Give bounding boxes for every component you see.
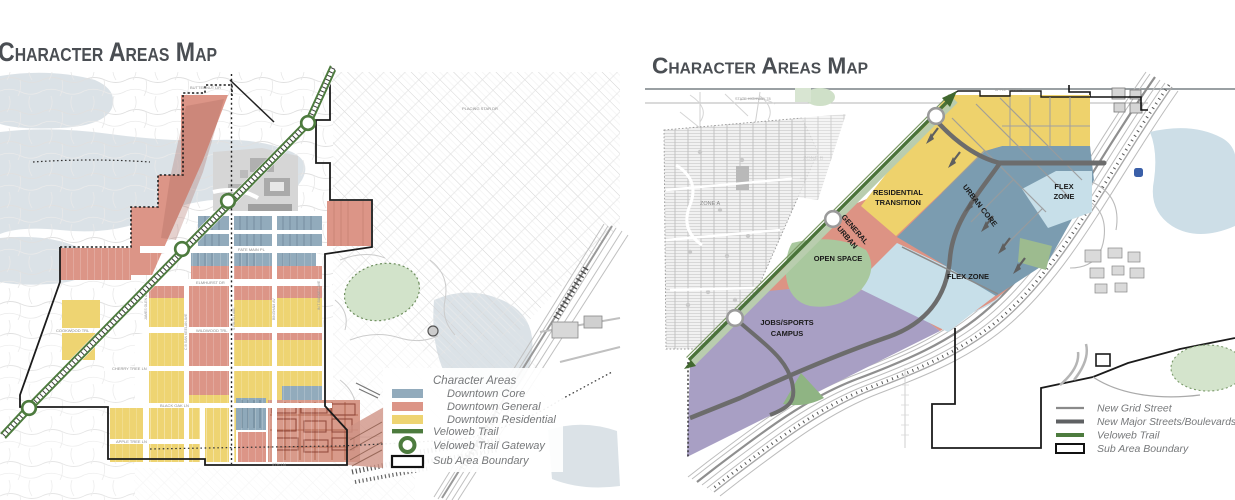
svg-text:Sub Area Boundary: Sub Area Boundary <box>433 455 530 467</box>
svg-text:Character Areas Map: Character Areas Map <box>652 53 868 79</box>
svg-text:FLEX: FLEX <box>1054 182 1073 191</box>
svg-text:Veloweb Trail Gateway: Veloweb Trail Gateway <box>433 440 546 452</box>
svg-text:Character Areas Map: Character Areas Map <box>0 37 217 67</box>
svg-text:FLEX ZONE: FLEX ZONE <box>947 272 989 281</box>
svg-text:Downtown Residential: Downtown Residential <box>447 414 556 426</box>
svg-text:APPLE TREE LN: APPLE TREE LN <box>116 439 147 444</box>
svg-text:BINGHAM AV: BINGHAM AV <box>272 298 276 320</box>
svg-text:New Grid Street: New Grid Street <box>1097 403 1173 415</box>
svg-text:S FM 551 AVE: S FM 551 AVE <box>232 307 236 330</box>
svg-text:RESIDENTIAL: RESIDENTIAL <box>873 188 923 197</box>
svg-text:COOKWOOD TRL: COOKWOOD TRL <box>56 328 90 333</box>
svg-text:ZONE: ZONE <box>1054 192 1075 201</box>
svg-text:Character Areas: Character Areas <box>433 375 517 387</box>
svg-text:Veloweb Trail: Veloweb Trail <box>1097 430 1160 442</box>
svg-text:8TH LN: 8TH LN <box>272 462 286 467</box>
svg-text:IN T BARNES AVE: IN T BARNES AVE <box>317 280 321 310</box>
svg-text:New Major Streets/Boulevards: New Major Streets/Boulevards <box>1097 417 1235 428</box>
svg-text:C B SAN KEELAN AVE: C B SAN KEELAN AVE <box>184 313 188 350</box>
svg-text:OPEN SPACE: OPEN SPACE <box>814 254 863 263</box>
svg-text:FATE MAIN PL: FATE MAIN PL <box>238 247 266 252</box>
svg-text:CAMPUS: CAMPUS <box>771 329 804 338</box>
svg-text:WILDWOOD TRL: WILDWOOD TRL <box>196 328 228 333</box>
svg-text:BLACK OAK LN: BLACK OAK LN <box>160 403 189 408</box>
svg-text:JOBS/SPORTS: JOBS/SPORTS <box>760 318 813 327</box>
svg-text:BUTTERNUT DR: BUTTERNUT DR <box>190 85 221 90</box>
svg-text:ELMHURST DR: ELMHURST DR <box>196 280 225 285</box>
svg-text:PLACING STAR DR: PLACING STAR DR <box>462 106 498 111</box>
svg-text:ZONE A: ZONE A <box>700 201 721 207</box>
svg-text:CHERRY TREE LN: CHERRY TREE LN <box>112 366 147 371</box>
svg-text:Sub Area Boundary: Sub Area Boundary <box>1097 443 1189 455</box>
svg-text:STATE HIGHWAY 78: STATE HIGHWAY 78 <box>735 97 771 101</box>
svg-text:Downtown Core: Downtown Core <box>447 388 525 400</box>
svg-text:TRANSITION: TRANSITION <box>875 198 921 207</box>
svg-text:Downtown General: Downtown General <box>447 401 541 413</box>
svg-text:Veloweb Trail: Veloweb Trail <box>433 426 499 438</box>
